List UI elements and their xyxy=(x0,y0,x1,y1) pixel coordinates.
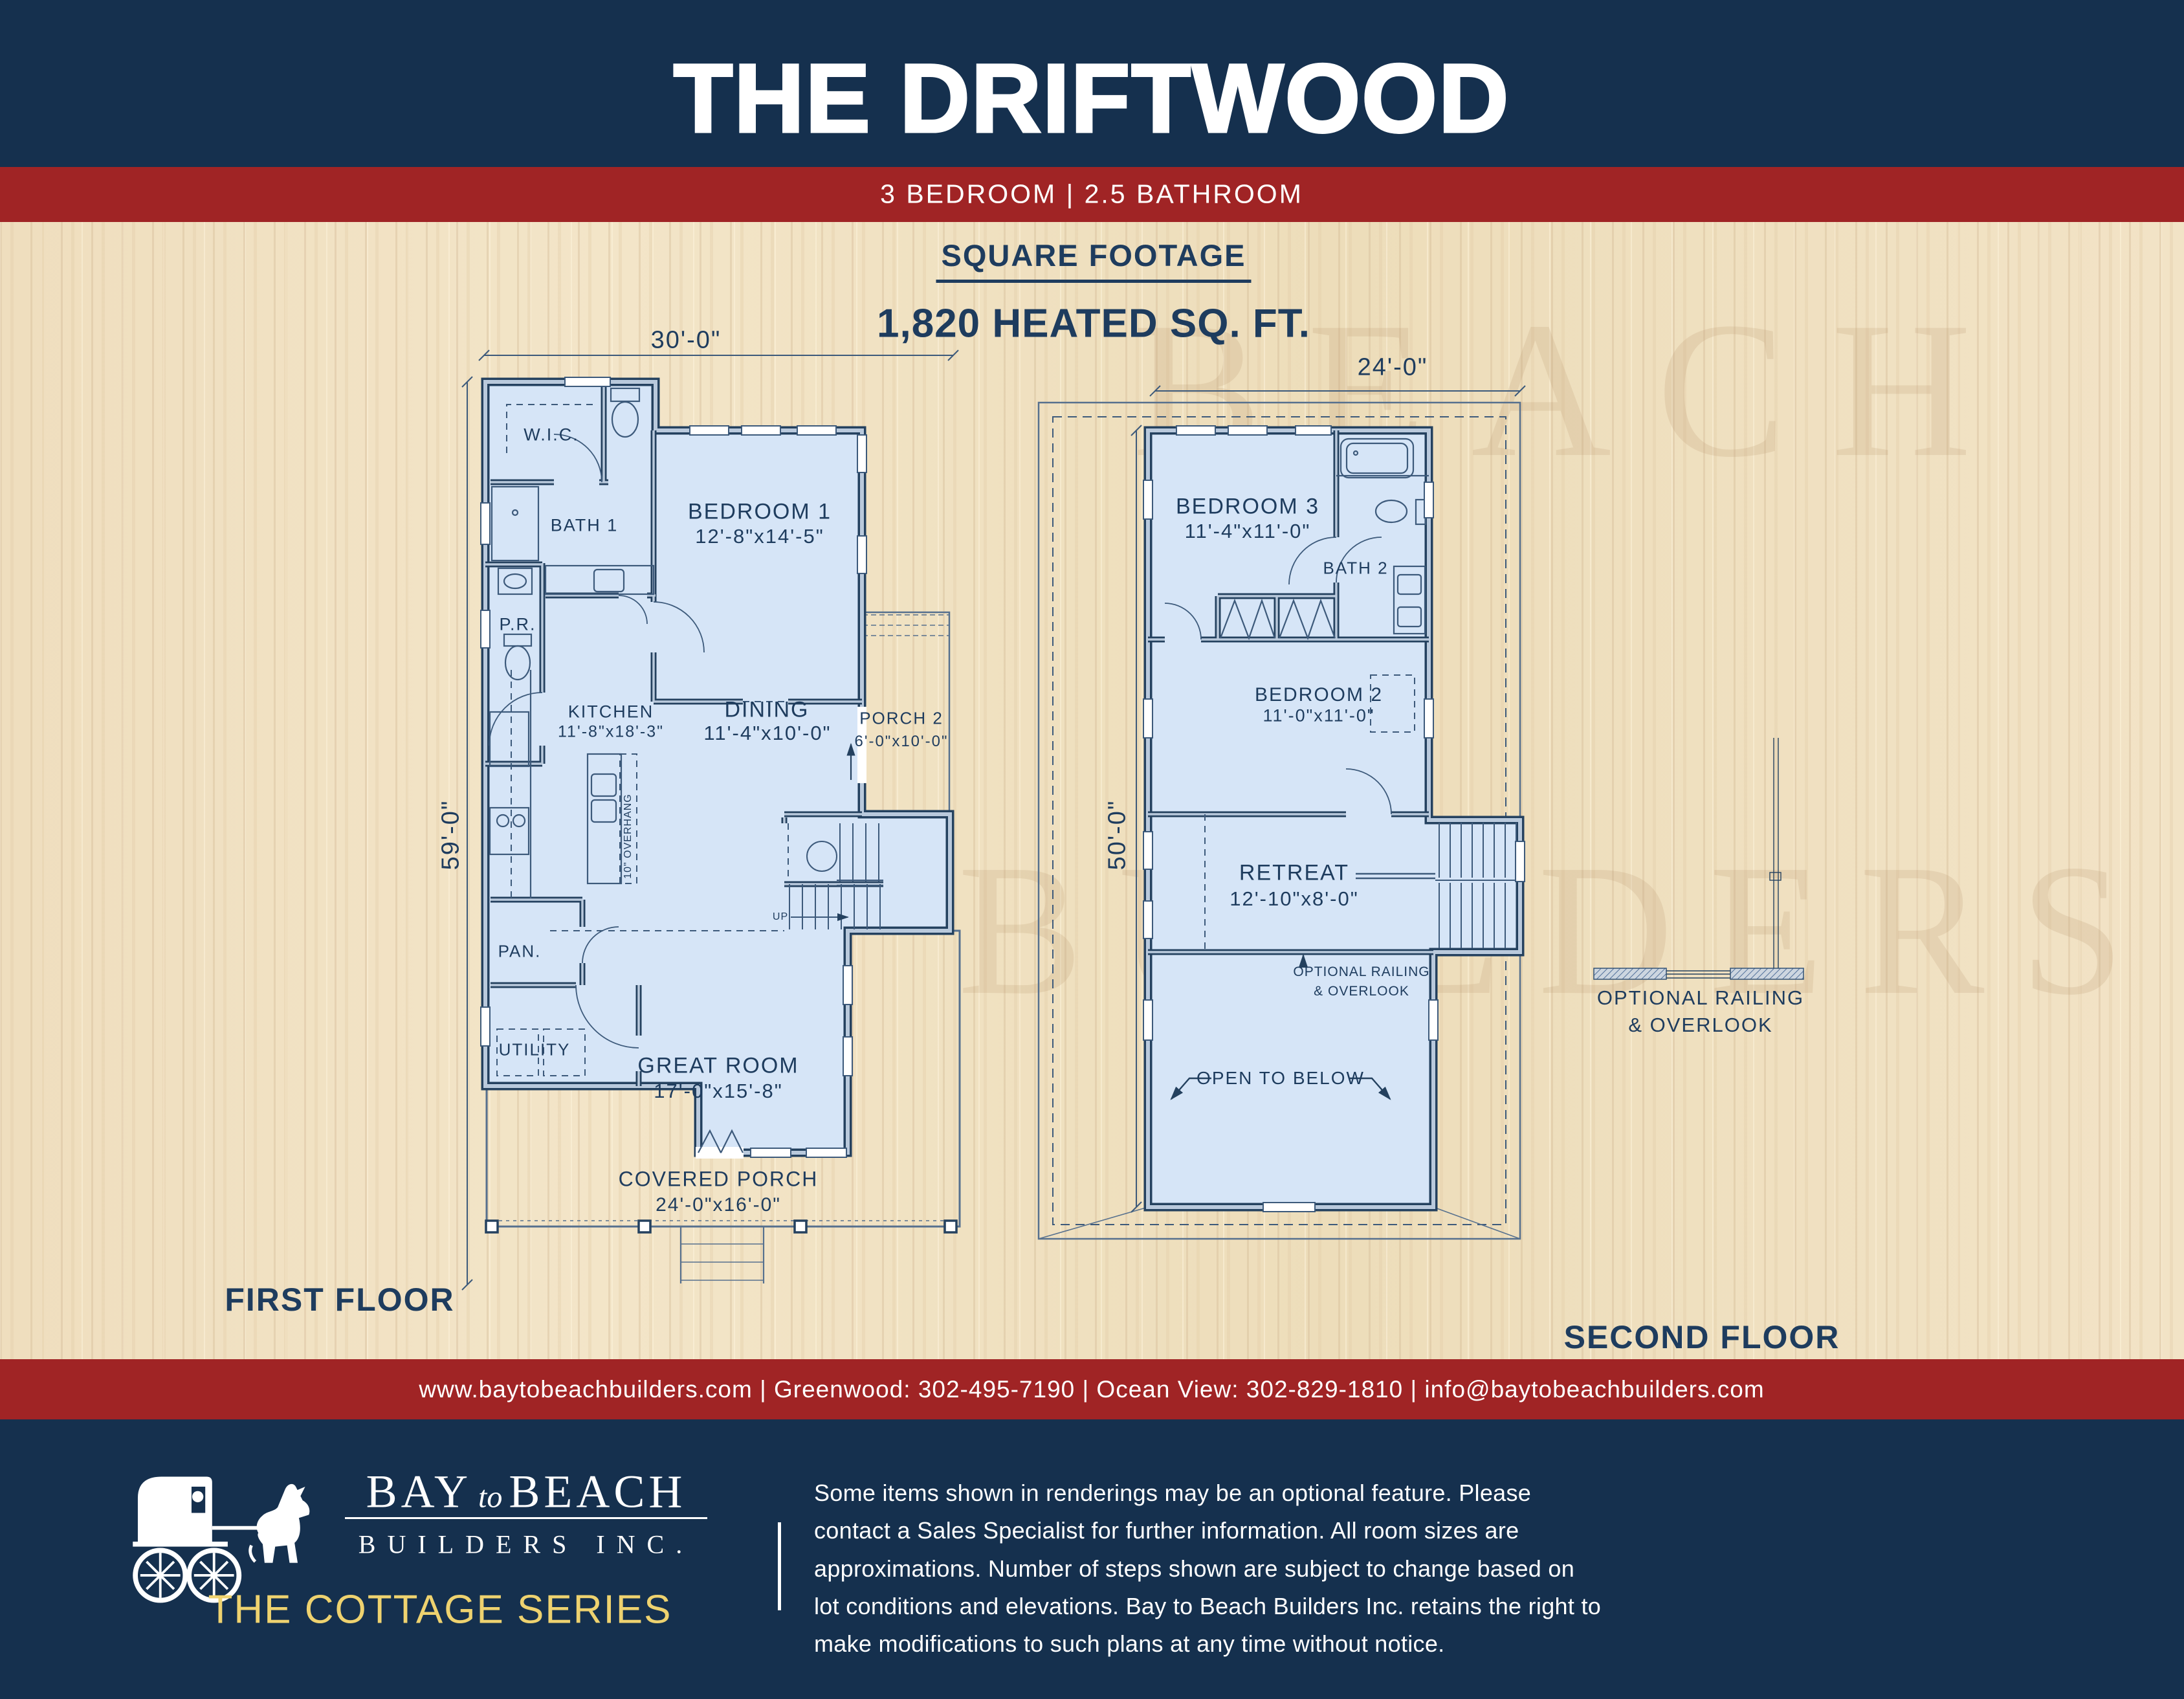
room-label-wic: W.I.C. xyxy=(524,425,579,445)
room-size-bedroom1: 12'-8"x14'-5" xyxy=(695,525,824,548)
disclaimer-text: Some items shown in renderings may be an… xyxy=(814,1474,1604,1663)
legend-railing-line2: & OVERLOOK xyxy=(1628,1014,1772,1037)
room-size-retreat: 12'-10"x8'-0" xyxy=(1230,887,1358,911)
logo-wordmark: BAYtoBEACH xyxy=(366,1465,687,1519)
room-label-dining: DINING xyxy=(725,698,810,723)
dim-30ft: 30'-0" xyxy=(651,327,722,355)
room-label-utility: UTILITY xyxy=(499,1040,571,1060)
logo-underline xyxy=(345,1517,707,1519)
room-label-kitchen: KITCHEN xyxy=(568,702,654,722)
room-size-bedroom3: 11'-4"x11'-0" xyxy=(1185,520,1311,543)
railing-note-line1: OPTIONAL RAILING xyxy=(1293,964,1429,980)
cottage-series-title: THE COTTAGE SERIES xyxy=(208,1587,672,1633)
room-label-bedroom2: BEDROOM 2 xyxy=(1255,684,1383,706)
room-size-great-room: 17'-0"x15'-8" xyxy=(654,1080,782,1103)
island-overhang-label: 10" OVERHANG xyxy=(623,794,634,879)
railing-note-line2: & OVERLOOK xyxy=(1314,984,1409,999)
room-label-retreat: RETREAT xyxy=(1239,861,1349,886)
stair-up-label: UP xyxy=(773,911,788,923)
room-size-kitchen: 11'-8"x18'-3" xyxy=(558,723,664,742)
logo-beach: BEACH xyxy=(509,1466,686,1518)
open-to-below-label: OPEN TO BELOW xyxy=(1197,1068,1365,1089)
room-label-pr: P.R. xyxy=(499,615,536,635)
room-label-porch2: PORCH 2 xyxy=(859,709,943,729)
room-label-great-room: GREAT ROOM xyxy=(637,1054,799,1079)
flyer-page: { "header":{"title":"THE DRIFTWOOD","sub… xyxy=(0,0,2184,1699)
room-label-bath1: BATH 1 xyxy=(551,516,619,536)
dim-24ft: 24'-0" xyxy=(1358,354,1428,382)
watermark-text-2: BUILDERS INC xyxy=(958,822,2184,1038)
bed-bath-text: 3 BEDROOM | 2.5 BATHROOM xyxy=(880,179,1303,210)
room-size-porch2: 6'-0"x10'-0" xyxy=(855,733,949,751)
logo-builders-inc: BUILDERS INC. xyxy=(358,1529,694,1560)
plan-title: THE DRIFTWOOD xyxy=(674,43,1510,155)
square-footage-heading: SQUARE FOOTAGE xyxy=(936,238,1251,283)
room-size-covered-porch: 24'-0"x16'-0" xyxy=(656,1194,781,1216)
footer-divider xyxy=(778,1522,781,1610)
second-floor-title: SECOND FLOOR xyxy=(1564,1318,1840,1356)
room-label-covered-porch: COVERED PORCH xyxy=(619,1168,819,1192)
contact-text: www.baytobeachbuilders.com | Greenwood: … xyxy=(419,1376,1764,1403)
logo-bay: BAY xyxy=(366,1466,472,1518)
legend-railing-line1: OPTIONAL RAILING xyxy=(1597,986,1804,1010)
dim-50ft: 50'-0" xyxy=(1104,800,1132,871)
room-size-dining: 11'-4"x10'-0" xyxy=(703,722,831,745)
logo-to: to xyxy=(478,1480,502,1515)
first-floor-title: FIRST FLOOR xyxy=(225,1281,454,1318)
dim-59ft: 59'-0" xyxy=(437,800,465,871)
room-label-bedroom1: BEDROOM 1 xyxy=(688,500,832,525)
room-size-bedroom2: 11'-0"x11'-0" xyxy=(1263,706,1374,726)
room-label-bath2: BATH 2 xyxy=(1323,559,1388,579)
room-label-pan: PAN. xyxy=(498,942,542,962)
square-footage-value: 1,820 HEATED SQ. FT. xyxy=(877,301,1310,347)
room-label-bedroom3: BEDROOM 3 xyxy=(1176,494,1319,520)
